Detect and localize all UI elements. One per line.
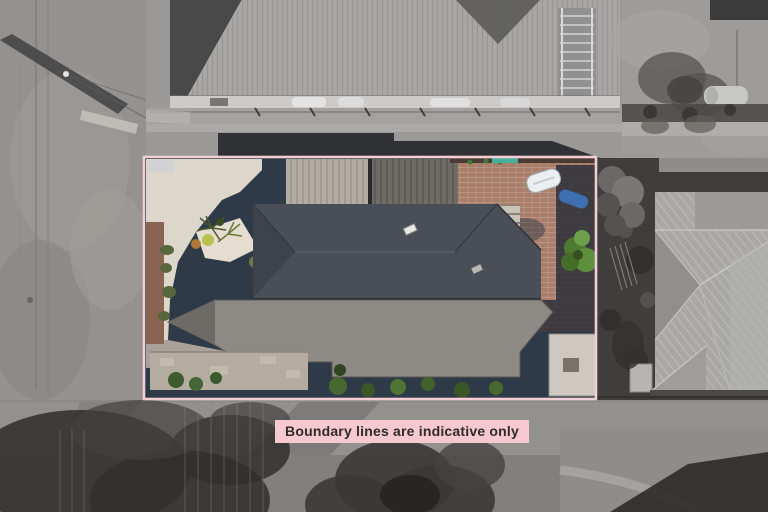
- top-right-driveway: [610, 0, 768, 158]
- north-path: [170, 96, 620, 108]
- property-color-region: [144, 157, 598, 399]
- left-verge: [0, 0, 150, 405]
- carport-roof-right: [372, 159, 458, 205]
- scaffold-ladder: [558, 8, 596, 96]
- right-neighbor: [596, 158, 768, 410]
- boundary-disclaimer-label: Boundary lines are indicative only: [275, 420, 529, 443]
- water-tank: [704, 86, 748, 106]
- main-roof-upper: [253, 204, 541, 298]
- bottom-band: [0, 392, 768, 512]
- top-street-block: [146, 0, 622, 158]
- tree-shadow-left: [0, 400, 290, 512]
- aerial-photo-viewport: Boundary lines are indicative only: [0, 0, 768, 512]
- teal-strip: [492, 158, 518, 163]
- brick-wall: [146, 222, 164, 344]
- north-neighbor-roof: [170, 0, 620, 96]
- carport-roof-left: [286, 159, 368, 205]
